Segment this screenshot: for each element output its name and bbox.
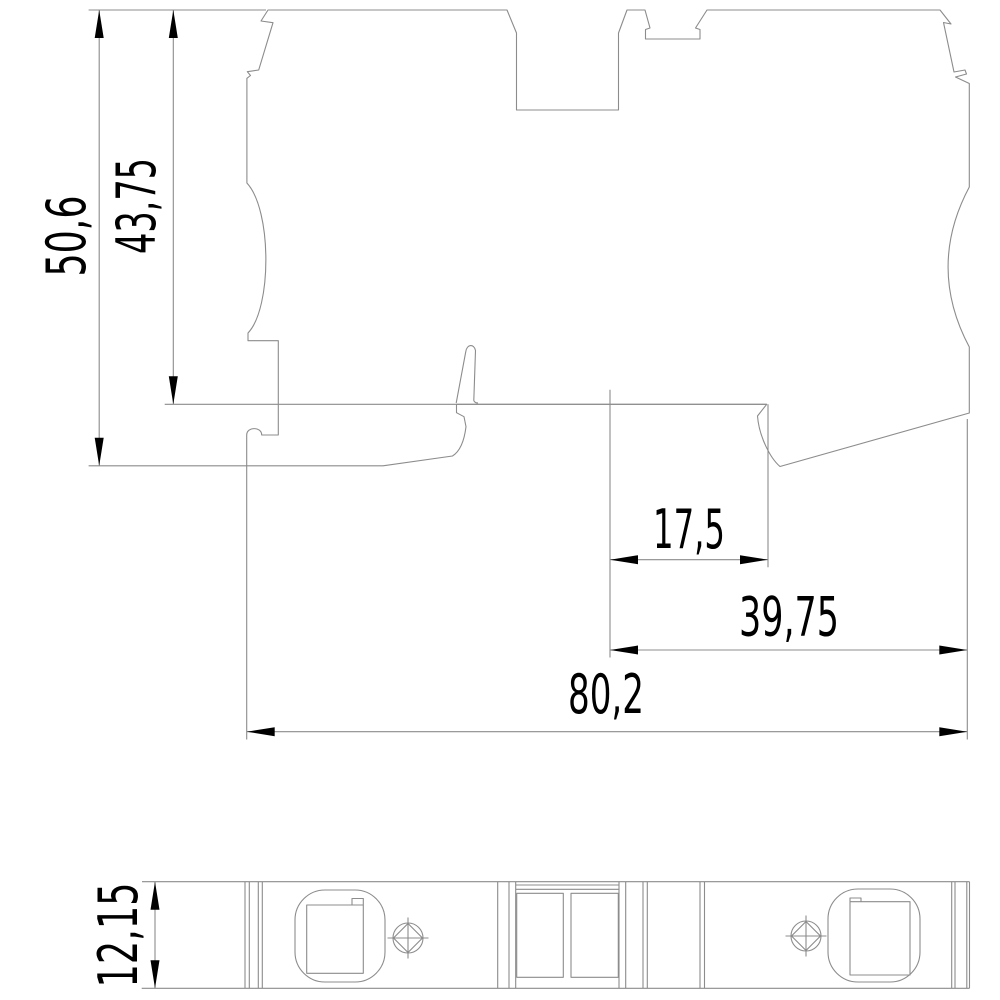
drawing-canvas: 50,6 43,75 17,5 39,75 80,2 12,15 [0,0,1000,1000]
dimension-arrows [95,10,968,988]
right-cross-hairs [786,916,827,957]
arrow-overall-width-left [247,727,275,736]
left-screw-recess [295,890,385,982]
lever-finger [456,346,478,403]
bottom-view [142,882,970,989]
linework [89,10,970,988]
arrow-overall-width-right [939,727,967,736]
arrow-profile-depth-bottom [151,960,160,988]
arrow-pitch-offset-right [740,555,768,564]
left-screw-slot [307,899,364,974]
left-cross-symbol [388,918,429,959]
arrow-overall-height-top [95,10,104,38]
left-cross-hairs [388,918,429,959]
label-profile-depth: 12,15 [87,883,150,988]
dimension-labels: 50,6 43,75 17,5 39,75 80,2 12,15 [35,158,839,988]
right-cross-symbol [786,916,827,957]
arrow-pitch-offset-left [610,555,638,564]
center-block-inner-lines [516,885,619,977]
arrow-right-section-right [939,646,967,655]
right-screw-recess [828,889,920,982]
side-view-outline [247,10,970,467]
arrow-profile-depth-top [151,882,160,910]
arrow-overall-height-bottom [95,438,104,466]
right-screw-slot [850,898,910,975]
label-right-section-width: 39,75 [739,586,839,649]
label-overall-height: 50,6 [35,196,98,277]
dimension-lines [89,10,968,988]
technical-drawing: 50,6 43,75 17,5 39,75 80,2 12,15 [0,0,1000,1000]
label-pitch-offset: 17,5 [653,498,725,561]
side-view [247,10,970,467]
label-overall-width: 80,2 [568,663,644,726]
arrow-upper-height-top [169,10,178,38]
label-upper-height: 43,75 [105,158,168,254]
arrow-upper-height-bottom [169,376,178,404]
arrow-right-section-left [610,646,638,655]
